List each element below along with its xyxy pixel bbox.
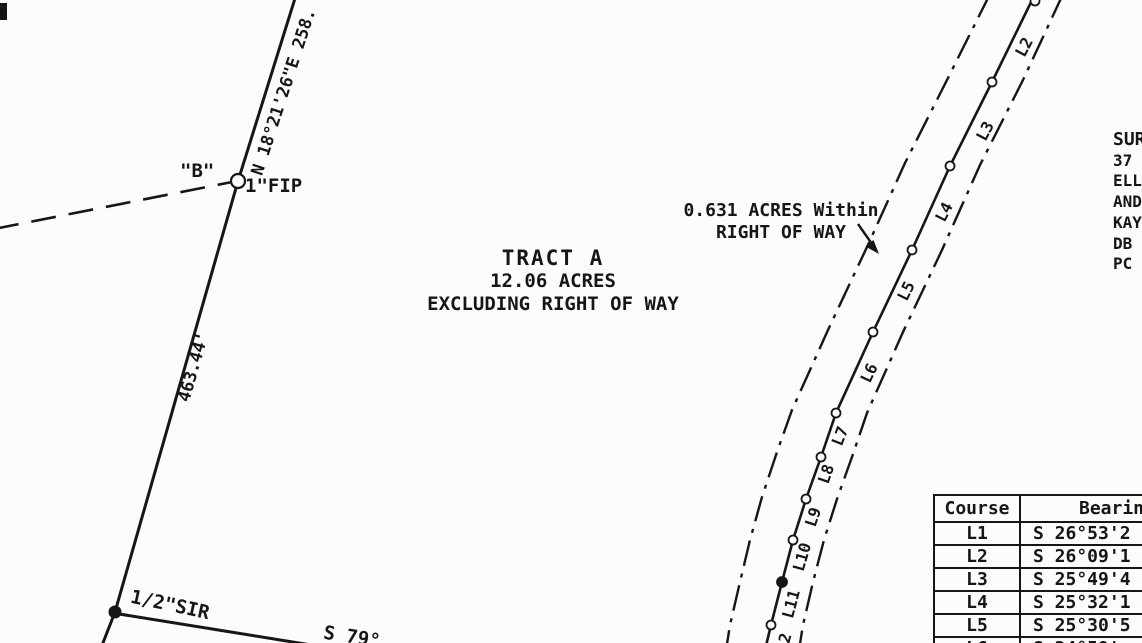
bearing-cell: S 25°49'4 [1020,568,1142,591]
notes-line-7: PC [1113,254,1142,275]
course-cell: L4 [934,591,1020,614]
table-row: L4 S 25°32'1 [934,591,1142,614]
bearing-cell: S 25°32'1 [1020,591,1142,614]
tract-title: TRACT A [408,247,698,270]
survey-plat-drawing: TRACT A 12.06 ACRES EXCLUDING RIGHT OF W… [0,0,1142,643]
bearing-cell: S 24°59' [1020,637,1142,643]
bearing-cell: S 25°30'5 [1020,614,1142,637]
notes-line-4: AND [1113,192,1142,213]
course-cell: L6 [934,637,1020,643]
course-cell: L2 [934,545,1020,568]
tie-line-dashed [0,182,232,229]
reference-notes-block: SUR 37 ELL AND KAY DB PC [1113,130,1142,275]
point-b-marker-label: 1"FIP [245,175,302,197]
row-note-line1: 0.631 ACRES Within [676,200,886,222]
course-table-header-row: Course Bearing [934,495,1142,522]
point-b-label: "B" [180,160,214,182]
notes-line-2: 37 [1113,151,1142,172]
course-table-header-course: Course [934,495,1020,522]
tract-qualifier: EXCLUDING RIGHT OF WAY [408,293,698,316]
table-row: L6 S 24°59' [934,637,1142,643]
tract-area: 12.06 ACRES [408,270,698,293]
table-row: L5 S 25°30'5 [934,614,1142,637]
notes-line-6: DB [1113,234,1142,255]
tract-label: TRACT A 12.06 ACRES EXCLUDING RIGHT OF W… [408,247,698,316]
sir-point-dot [109,606,122,619]
boundary-line-south [119,614,330,643]
bearing-cell: S 26°53'2 [1020,522,1142,545]
scan-corner-mark [0,3,7,20]
course-table-header-bearing: Bearing [1020,495,1142,522]
course-cell: L3 [934,568,1020,591]
row-note-line2: RIGHT OF WAY [676,222,886,244]
table-row: L1 S 26°53'2 [934,522,1142,545]
point-b-fip-circle [231,174,245,188]
notes-line-3: ELL [1113,171,1142,192]
course-table: Course Bearing L1 S 26°53'2 L2 S 26°09'1… [933,494,1142,643]
notes-line-5: KAY [1113,213,1142,234]
row-acreage-note: 0.631 ACRES Within RIGHT OF WAY [676,200,886,244]
table-row: L2 S 26°09'1 [934,545,1142,568]
course-cell: L5 [934,614,1020,637]
course-cell: L1 [934,522,1020,545]
boundary-line-main [101,0,297,643]
bearing-cell: S 26°09'1 [1020,545,1142,568]
notes-line-1: SUR [1113,130,1142,151]
table-row: L3 S 25°49'4 [934,568,1142,591]
